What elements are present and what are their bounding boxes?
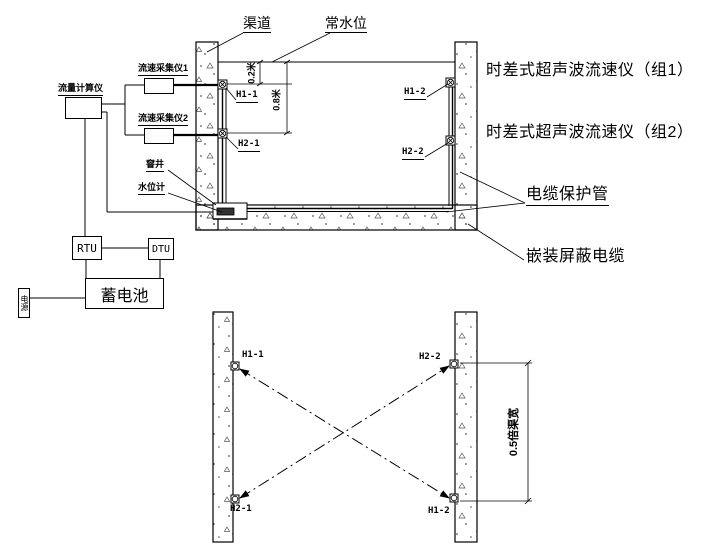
h1-1-tag-plan: H1-1 [242,351,264,361]
dtu-box: DTU [148,238,174,260]
h1-2-tag-section: H1-2 [404,88,426,100]
water-level-label: 常水位 [325,16,367,33]
collector1-box [144,78,174,94]
dim-0-8m: 0.8米 [270,89,283,111]
collector1-label: 流速采集仪1 [138,64,188,76]
shielded-cable-annotation: 嵌装屏蔽电缆 [526,248,625,266]
h2-1-tag-section: H2-1 [238,140,260,152]
power-source-box: 电源 [18,288,30,318]
h1-1-tag-section: H1-1 [236,91,258,103]
h2-1-tag-plan: H2-1 [230,505,252,515]
collector2-box [144,128,174,144]
diagram-linework [0,0,716,544]
collector2-label: 流速采集仪2 [138,114,188,126]
sensor-h2-1-symbol [218,129,227,138]
plan-right-wall [455,312,477,542]
flow-computer-box [65,97,102,119]
plan-sensor-h2-2 [450,360,458,368]
canal-label: 渠道 [243,16,271,33]
group1-annotation: 时差式超声波流速仪（组1） [486,62,693,80]
water-gauge-label: 水位计 [138,183,165,195]
right-wall [455,42,477,230]
telemetry-wiring [28,112,213,298]
dim-half-width: 0.5倍渠宽 [505,408,521,456]
group2-annotation: 时差式超声波流速仪（组2） [486,124,693,142]
power-source-label: 电源 [20,295,28,311]
cable-tube-annotation: 电缆保护管 [526,186,609,206]
h2-2-tag-section: H2-2 [402,148,424,160]
dtu-label: DTU [152,244,170,255]
battery-label: 蓄电池 [100,282,148,306]
h1-2-tag-plan: H1-2 [428,507,450,517]
plan-sensor-h1-2 [450,494,458,502]
flow-computer-label: 流量计算仪 [58,84,103,96]
plan-sensor-h2-1 [231,495,239,503]
plan-sensor-h1-1 [231,362,239,370]
water-level-leader [272,33,330,62]
plan-view [213,312,532,542]
dim-0-2m: 0.2米 [245,62,258,84]
rtu-box: RTU [72,236,102,260]
acoustic-paths [240,366,449,498]
cad-drawing: RTU DTU 蓄电池 电源 渠道 常水位 流速采集仪1 流速采集仪2 流量计算… [0,0,716,544]
well-label: 窨井 [146,160,164,172]
rtu-label: RTU [77,242,97,255]
battery-box: 蓄电池 [85,278,164,309]
sensor-h1-2-symbol [446,78,455,87]
plan-sensors [231,360,458,503]
sensor-h1-1-symbol [218,80,227,89]
h2-2-tag-plan: H2-2 [419,353,441,363]
